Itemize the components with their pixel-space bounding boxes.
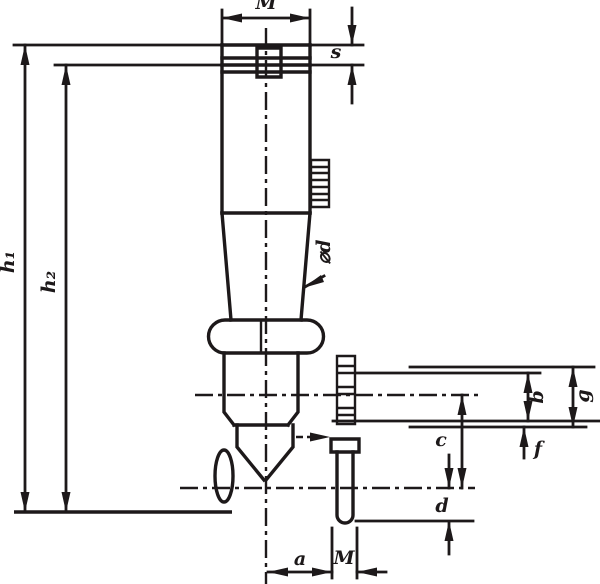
arrow-a-left-icon xyxy=(268,568,288,577)
rib-detail-lines xyxy=(311,167,329,200)
arrow-m-top-right-icon xyxy=(290,14,310,23)
component-outline xyxy=(209,45,360,523)
dim-label-h1: h₁ xyxy=(0,251,19,273)
dim-label-h2: h₂ xyxy=(38,271,60,293)
dimension-labels: Msh₁h₂⌀dbgfcdaM xyxy=(0,0,594,570)
dim-label-d-diameter: ⌀d xyxy=(313,240,335,265)
dim-label-m-top: M xyxy=(254,0,277,14)
arrow-f-icon xyxy=(520,427,529,447)
arrow-h2-top-icon xyxy=(62,65,71,85)
base-cylinder xyxy=(224,353,298,425)
arrow-m-pin-right-icon xyxy=(357,568,377,577)
pin-head xyxy=(331,439,359,452)
dimension-drawing-canvas: Msh₁h₂⌀dbgfcdaM xyxy=(0,0,600,584)
side-pin-hatching xyxy=(337,366,355,415)
arrow-a-right-icon xyxy=(312,568,332,577)
arrow-c-top-icon xyxy=(458,395,467,415)
arrow-s-upper-icon xyxy=(348,25,357,45)
arrow-d-upper-icon xyxy=(445,468,454,488)
dim-label-m-pin: M xyxy=(332,547,355,569)
dim-label-c: c xyxy=(435,429,447,451)
ext-lines-side-pin xyxy=(333,367,600,427)
dim-d-lines xyxy=(356,455,473,554)
pin-leader-arrow-icon xyxy=(310,433,330,442)
dim-label-b: b xyxy=(526,390,548,403)
arrow-h2-bottom-icon xyxy=(62,492,71,512)
dim-label-d-small: d xyxy=(435,495,448,517)
arrow-h1-top-icon xyxy=(21,45,30,65)
lead-loop xyxy=(215,450,233,502)
arrow-c-bottom-icon xyxy=(458,468,467,488)
dimension-arrowheads xyxy=(21,14,578,577)
dim-label-g: g xyxy=(572,389,594,402)
arrow-m-top-left-icon xyxy=(222,14,242,23)
dimension-lines xyxy=(14,8,600,578)
arrow-g-bottom-icon xyxy=(569,407,578,427)
arrow-d-lower-icon xyxy=(445,521,454,541)
dim-label-f: f xyxy=(532,438,545,460)
arrow-s-lower-icon xyxy=(348,65,357,85)
dim-label-a: a xyxy=(294,548,306,570)
arrow-h1-bottom-icon xyxy=(21,492,30,512)
arrow-g-top-icon xyxy=(569,367,578,387)
component-dimension-drawing: Msh₁h₂⌀dbgfcdaM xyxy=(0,0,600,584)
dim-label-s: s xyxy=(330,41,342,63)
arrow-b-top-icon xyxy=(524,373,533,393)
